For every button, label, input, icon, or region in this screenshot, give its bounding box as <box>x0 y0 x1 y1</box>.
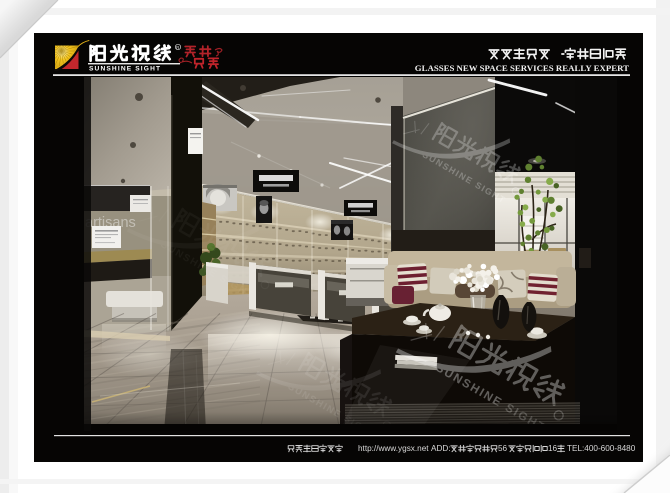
svg-text:R: R <box>176 45 179 50</box>
svg-text:56: 56 <box>498 444 508 453</box>
svg-text:TEL:400-600-8480: TEL:400-600-8480 <box>567 444 636 453</box>
svg-text:http://www.ygsx.net: http://www.ygsx.net <box>358 444 429 453</box>
svg-text:SUNSHINE SIGHT: SUNSHINE SIGHT <box>89 66 161 73</box>
svg-text:ADD:: ADD: <box>431 444 451 453</box>
svg-text:GLASSES NEW SPACE SERVICES REA: GLASSES NEW SPACE SERVICES REALLY EXPERT <box>415 63 629 73</box>
svg-text:16: 16 <box>548 444 558 453</box>
